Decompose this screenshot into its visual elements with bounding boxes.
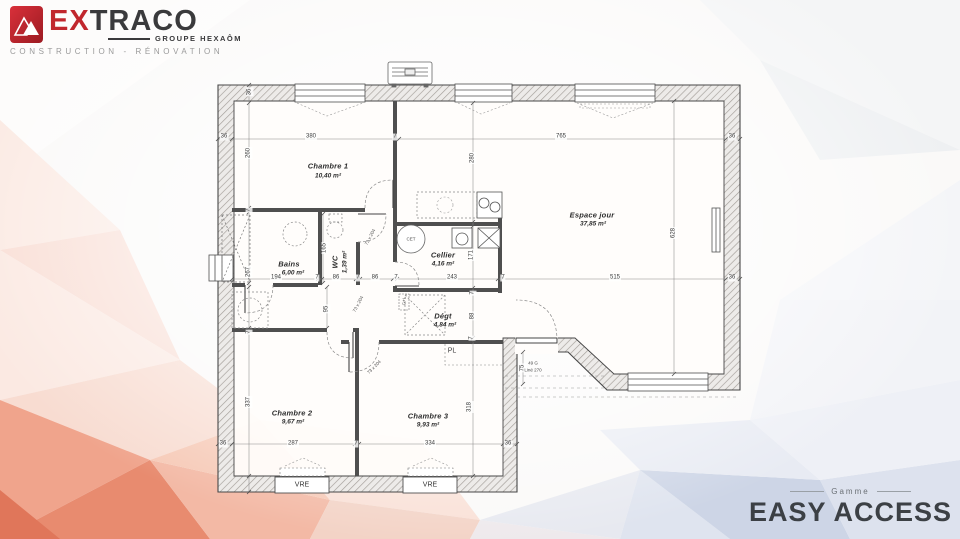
dim-hall: 95 xyxy=(324,305,331,314)
dim-left-3: 7 xyxy=(246,329,253,334)
dim-left-2: 267 xyxy=(246,266,253,278)
room-area-bains: 6,00 m² xyxy=(282,270,304,277)
dim-top-2: 7 xyxy=(392,134,397,141)
room-label-degagement: Dégt xyxy=(434,313,451,320)
dim-mid-6: 243 xyxy=(446,275,458,282)
brand-ex: EX xyxy=(49,5,90,37)
vre-label-1: VRE xyxy=(295,482,309,489)
vre-label-2: VRE xyxy=(423,482,437,489)
room-label-chambre2: Chambre 2 xyxy=(272,410,313,417)
room-label-wc: WC xyxy=(332,256,339,269)
dryer-slot xyxy=(478,228,500,248)
entrance-door xyxy=(515,336,558,354)
extraco-logo: EXTRACO GROUPE HEXAÔM CONSTRUCTION - RÉN… xyxy=(10,6,242,56)
utility-label: G+L xyxy=(401,297,408,306)
window-bains xyxy=(209,255,233,281)
dim-left-0: 260 xyxy=(246,147,253,159)
dim-center-5: 318 xyxy=(467,401,474,413)
gamme-rule-right xyxy=(877,491,911,492)
dim-top-0: 36 xyxy=(220,134,229,141)
window-kitchen xyxy=(455,84,512,102)
floor-plan-drawing xyxy=(215,58,747,498)
water-heater-label: CET xyxy=(407,236,416,243)
room-label-chambre3: Chambre 3 xyxy=(408,413,449,420)
window-espace-jour-top xyxy=(575,84,655,102)
dim-mid-4: 86 xyxy=(371,275,380,282)
dim-mid-9: 36 xyxy=(728,275,737,282)
dim-mid-1: 7 xyxy=(314,275,319,282)
window-espace-jour-south xyxy=(628,373,708,391)
window-chambre1 xyxy=(295,84,365,102)
dim-center-3: 88 xyxy=(470,312,477,321)
range-name: EASY ACCESS xyxy=(749,497,952,528)
dim-top-1: 380 xyxy=(305,134,317,141)
dim-top-4: 36 xyxy=(728,134,737,141)
dim-right: 628 xyxy=(671,227,678,239)
room-label-espace-jour: Espace jour xyxy=(570,212,615,219)
room-label-bains: Bains xyxy=(278,261,299,268)
group-rule xyxy=(108,38,150,40)
dim-bottom-4: 36 xyxy=(504,441,513,448)
dim-wc-width: 165 xyxy=(322,242,329,254)
group-name: GROUPE HEXAÔM xyxy=(155,34,242,43)
dim-center-2: 7 xyxy=(470,290,477,295)
extraco-logo-icon xyxy=(10,6,43,43)
room-area-chambre3: 9,93 m² xyxy=(417,422,439,429)
room-label-cellier: Cellier xyxy=(431,252,455,259)
brand-tagline: CONSTRUCTION - RÉNOVATION xyxy=(10,47,242,56)
dim-center-1: 171 xyxy=(469,249,476,261)
dim-mid-8: 515 xyxy=(609,275,621,282)
dim-mid-5: 7 xyxy=(393,275,398,282)
dim-bottom-3: 334 xyxy=(424,441,436,448)
kitchen-sink xyxy=(477,192,502,218)
dim-mid-7: 7 xyxy=(500,275,505,282)
room-area-wc: 1,39 m² xyxy=(342,251,349,273)
brand-traco: TRACO xyxy=(90,5,198,37)
dim-bottom-2: 7 xyxy=(353,441,358,448)
dim-mid-3: 7 xyxy=(355,275,360,282)
room-label-placard: PL xyxy=(448,348,457,355)
dim-center-0: 280 xyxy=(470,152,477,164)
room-area-chambre2: 9,67 m² xyxy=(282,419,304,426)
room-area-espace-jour: 37,85 m² xyxy=(580,221,606,228)
brand-wordmark: EXTRACO xyxy=(49,6,242,36)
dim-left-4: 337 xyxy=(246,396,253,408)
dim-wall-thickness: 36 xyxy=(247,88,254,97)
dim-center-4: 7 xyxy=(469,335,476,340)
room-label-chambre1: Chambre 1 xyxy=(308,163,349,170)
dim-mid-2: 86 xyxy=(332,275,341,282)
entry-door-spec-1: 49 G xyxy=(528,360,538,367)
washing-machine xyxy=(452,228,472,248)
room-area-chambre1: 10,40 m² xyxy=(315,173,341,180)
dim-bottom-1: 287 xyxy=(287,441,299,448)
heat-pump-unit xyxy=(388,62,432,87)
radiator xyxy=(712,208,720,252)
gamme-label: Gamme xyxy=(831,487,869,496)
room-area-degagement: 4,84 m² xyxy=(434,322,456,329)
gamme-rule-left xyxy=(790,491,824,492)
range-badge: Gamme EASY ACCESS xyxy=(749,487,952,528)
entry-door-spec-2: Liné 270 xyxy=(524,367,541,374)
marketing-floorplan-page: EXTRACO GROUPE HEXAÔM CONSTRUCTION - RÉN… xyxy=(0,0,960,539)
room-area-cellier: 4,16 m² xyxy=(432,261,454,268)
dim-bottom-0: 36 xyxy=(219,441,228,448)
floor-plan: Chambre 1 10,40 m² Bains 6,00 m² WC 1,39… xyxy=(215,58,747,498)
dim-top-3: 765 xyxy=(555,134,567,141)
dim-mid-0: 194 xyxy=(270,275,282,282)
dim-left-1: 7 xyxy=(246,207,253,212)
